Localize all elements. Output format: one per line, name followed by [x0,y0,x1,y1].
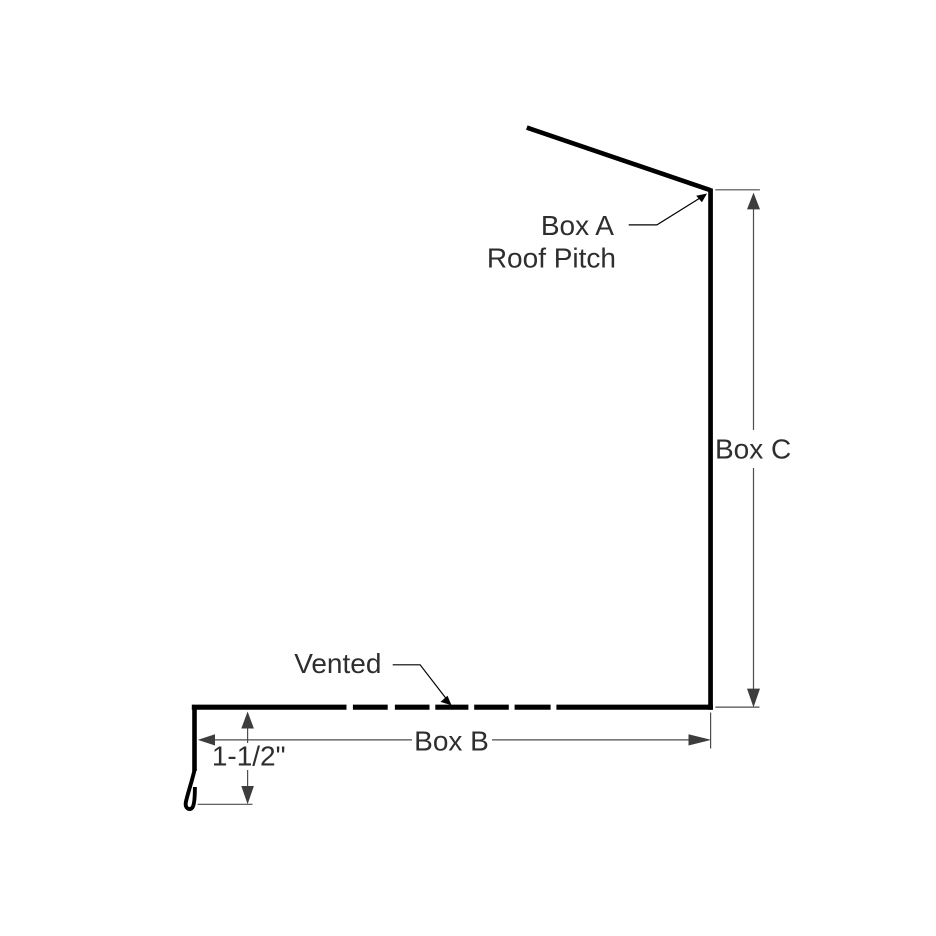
svg-text:1-1/2": 1-1/2" [212,741,286,772]
svg-text:Roof Pitch: Roof Pitch [487,243,616,274]
svg-text:Box B: Box B [414,726,489,757]
svg-text:Box A: Box A [541,210,614,241]
svg-text:Vented: Vented [294,648,381,679]
svg-text:Box C: Box C [715,433,791,464]
